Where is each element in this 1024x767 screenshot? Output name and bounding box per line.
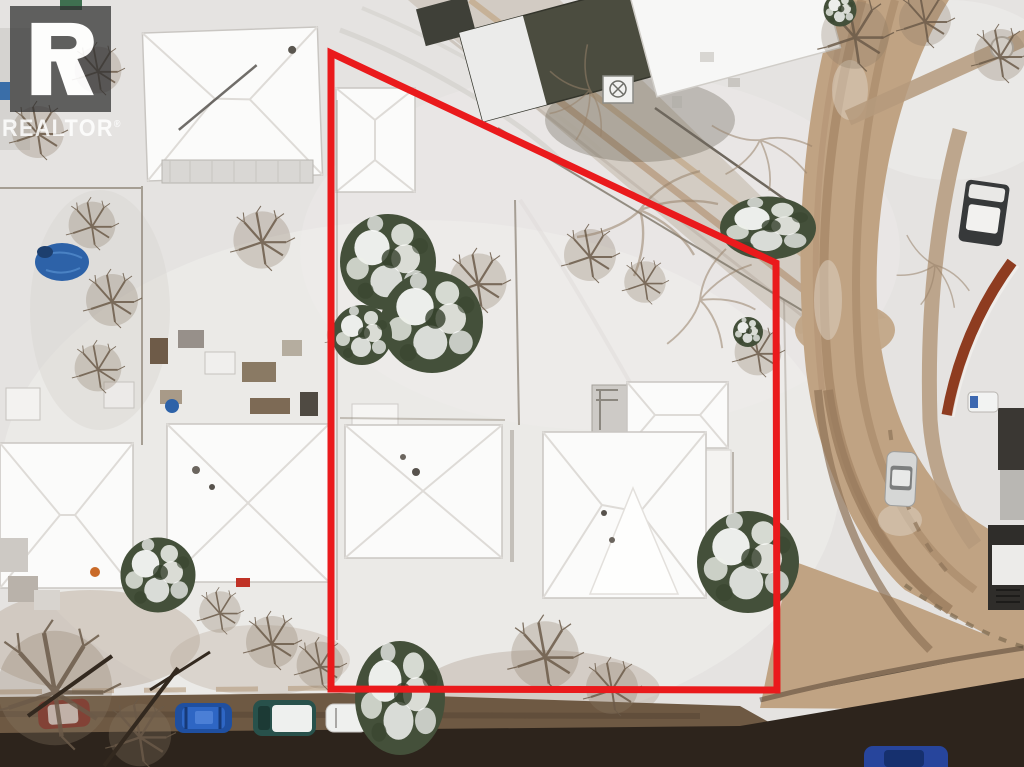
- roof-vent: [209, 484, 215, 490]
- red-item: [236, 578, 250, 587]
- roof-vent: [609, 537, 615, 543]
- blue-tarp: [35, 243, 89, 281]
- street-car-bottom-right: [864, 746, 948, 767]
- aerial-photo-canvas: [0, 0, 1024, 767]
- edge-building: [998, 408, 1024, 470]
- edge-building-roof: [992, 545, 1024, 585]
- roof-vent: [601, 510, 607, 516]
- edge-building: [1000, 470, 1024, 520]
- snowy-evergreen-tree: [733, 317, 763, 347]
- snowy-evergreen-tree: [720, 197, 816, 260]
- roof-vent: [192, 466, 200, 474]
- parked-car-blue: [175, 703, 232, 733]
- house-topleft-deck: [162, 160, 313, 183]
- snow-on-roof: [272, 705, 312, 732]
- blue-item: [0, 82, 10, 100]
- green-car-roof: [60, 0, 82, 10]
- parked-car-silver: [885, 451, 918, 506]
- shed-roof: [6, 388, 40, 420]
- roof-vent: [400, 454, 406, 460]
- orange-item: [90, 567, 100, 577]
- snowy-spruce: [121, 538, 196, 613]
- snowy-spruce: [355, 641, 445, 755]
- parked-car-teal: [253, 700, 316, 736]
- garage-on-lot: [336, 88, 415, 192]
- pickup-truck: [958, 179, 1010, 247]
- snowy-evergreen-tree: [381, 271, 483, 373]
- white-van: [968, 392, 998, 412]
- house-topleft: [142, 27, 322, 181]
- snowy-evergreen-tree: [697, 511, 799, 613]
- roof-vent: [412, 468, 420, 476]
- blue-barrel: [165, 399, 179, 413]
- ac-unit: [603, 76, 633, 103]
- house-on-lot-left: [345, 404, 502, 558]
- aerial-photo: REALTOR®: [0, 0, 1024, 767]
- snowy-evergreen-tree: [332, 305, 392, 365]
